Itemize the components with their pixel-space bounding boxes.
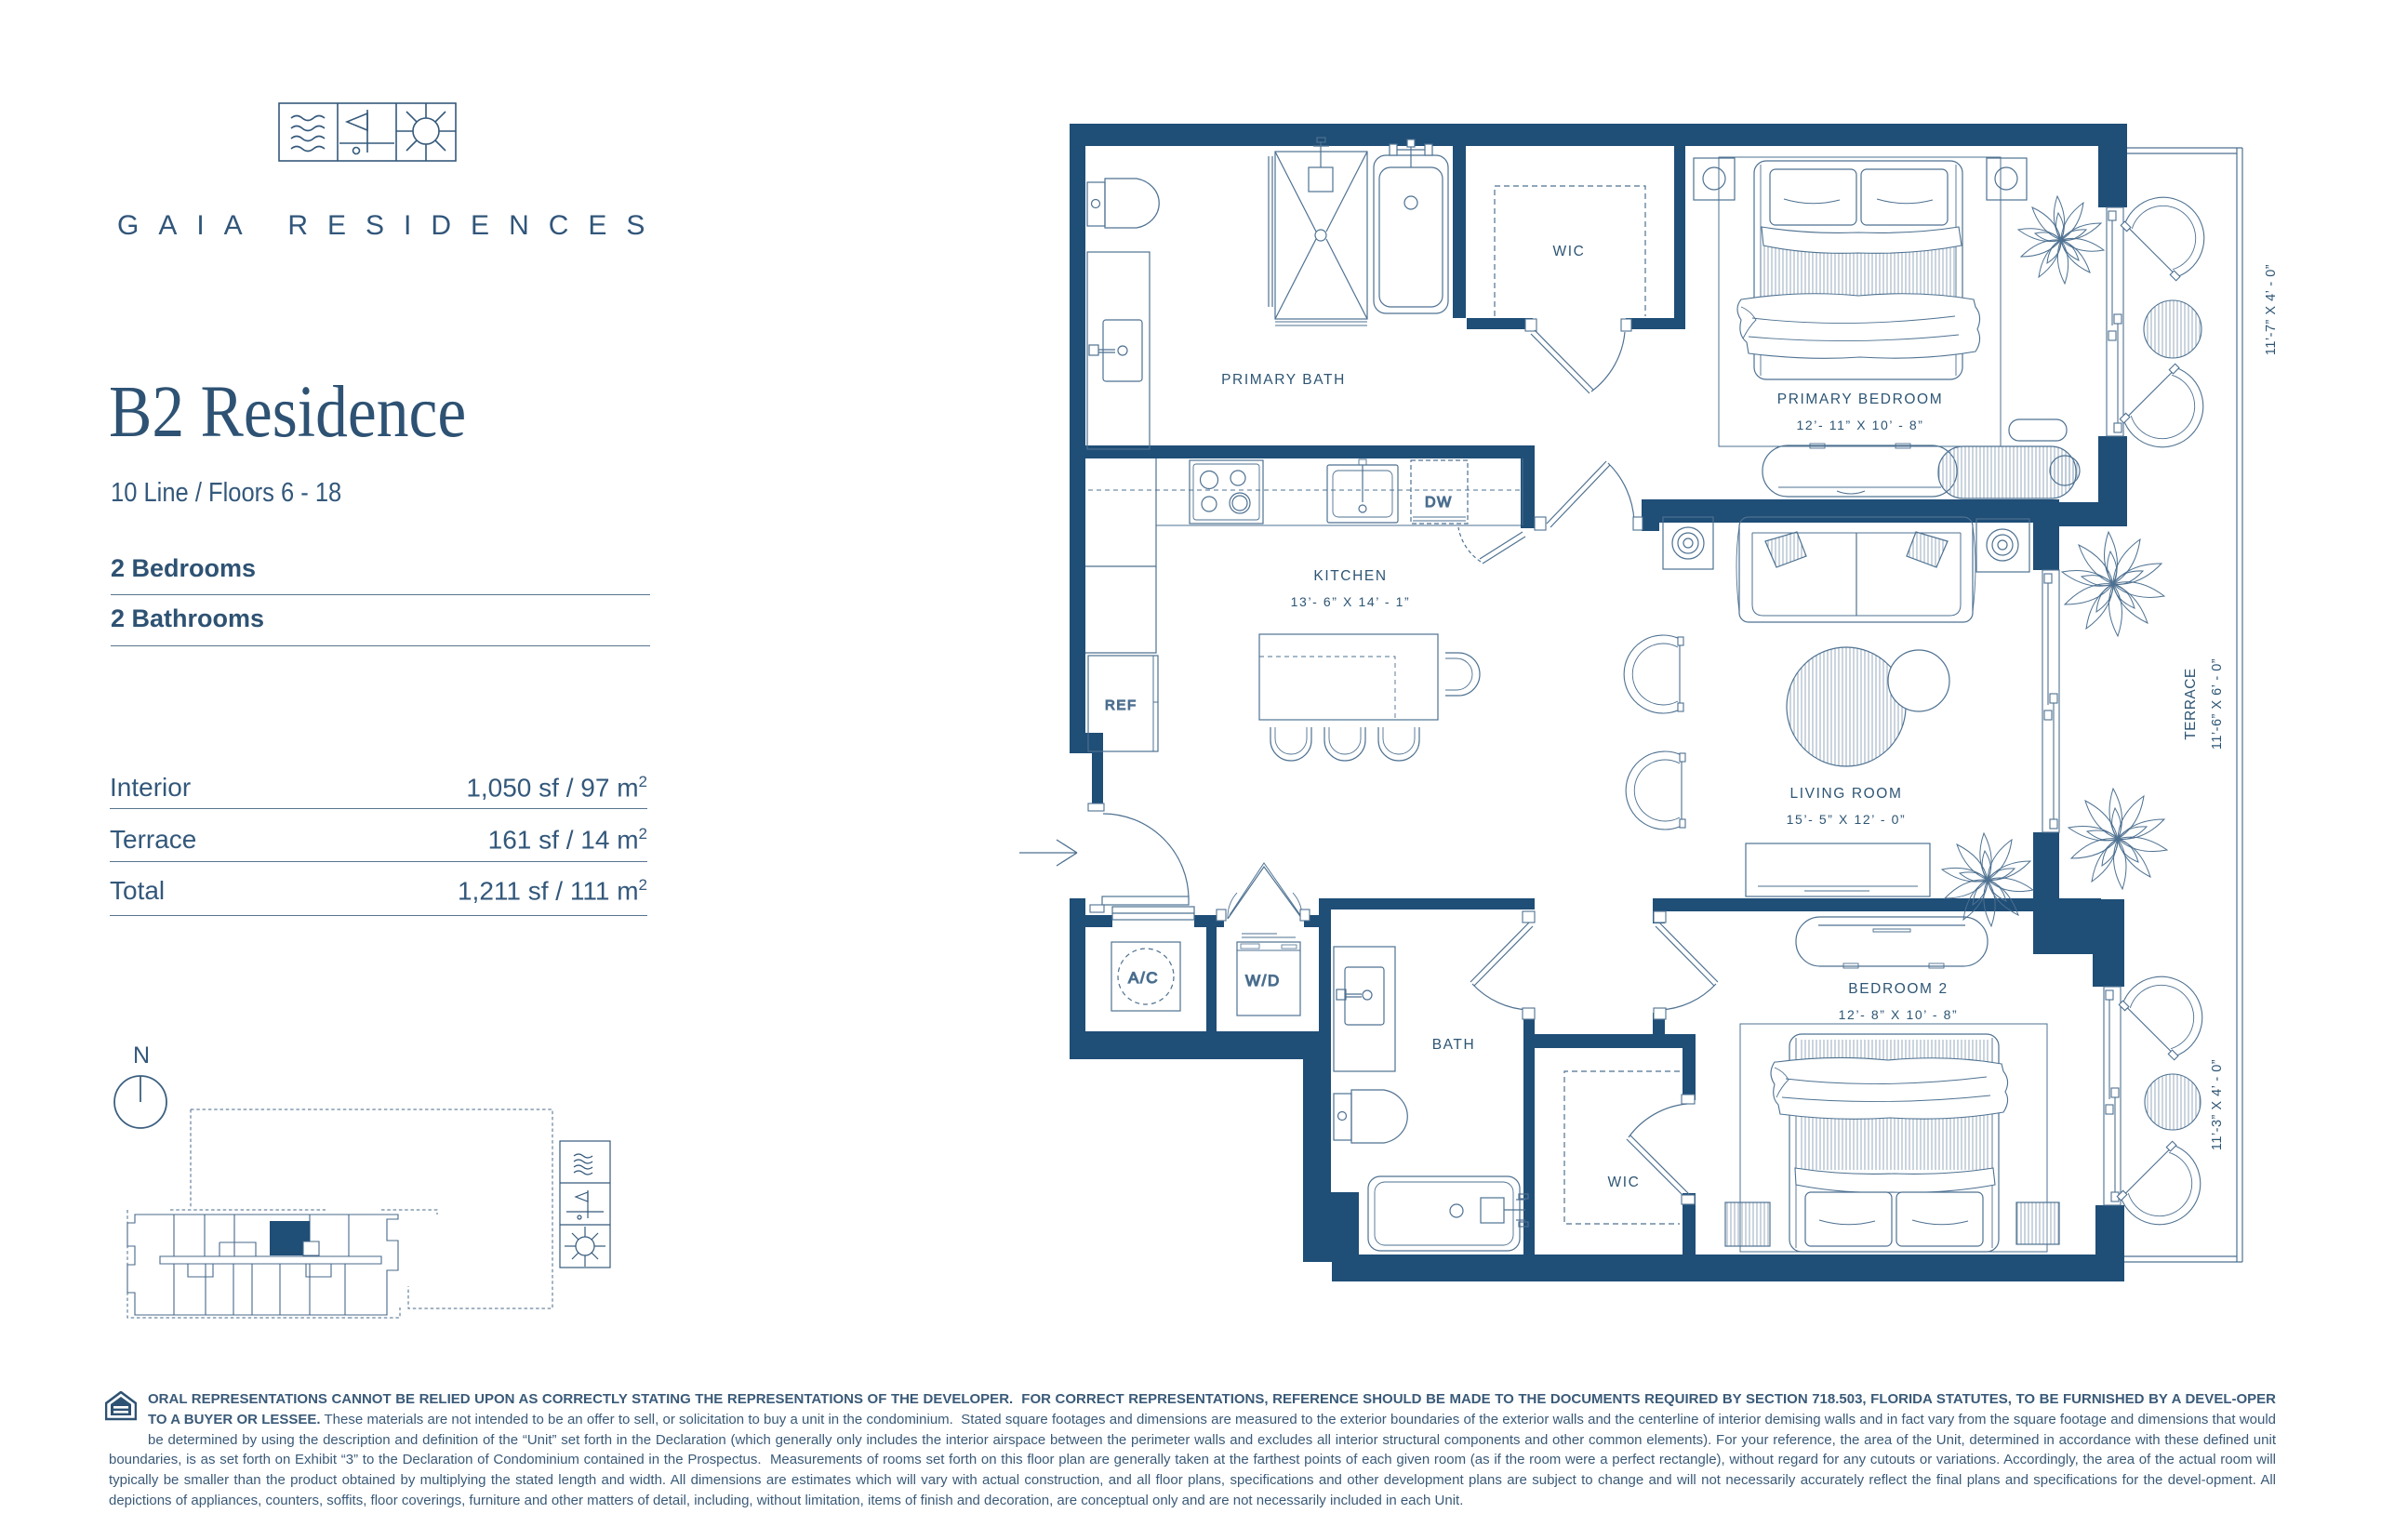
svg-text:N: N [133, 1042, 150, 1069]
svg-text:WIC: WIC [1553, 244, 1586, 259]
svg-text:11’-6” X 6’ - 0”: 11’-6” X 6’ - 0” [2210, 658, 2225, 750]
svg-text:BEDROOM 2: BEDROOM 2 [1848, 981, 1948, 997]
svg-text:13’- 6” X 14’ - 1”: 13’- 6” X 14’ - 1” [1291, 594, 1411, 609]
svg-text:REF: REF [1105, 697, 1137, 713]
svg-text:DW: DW [1425, 495, 1453, 511]
svg-text:PRIMARY BEDROOM: PRIMARY BEDROOM [1777, 392, 1943, 407]
svg-text:PRIMARY BATH: PRIMARY BATH [1221, 372, 1346, 388]
svg-text:12’- 11” X 10’ - 8”: 12’- 11” X 10’ - 8” [1797, 418, 1924, 432]
svg-text:BATH: BATH [1432, 1037, 1476, 1053]
svg-text:11’-3” X 4’ - 0”: 11’-3” X 4’ - 0” [2210, 1059, 2225, 1150]
svg-text:A/C: A/C [1128, 969, 1159, 987]
svg-text:W/D: W/D [1245, 972, 1281, 989]
svg-text:LIVING ROOM: LIVING ROOM [1790, 786, 1903, 802]
svg-text:TERRACE: TERRACE [2183, 668, 2199, 740]
svg-text:KITCHEN: KITCHEN [1313, 568, 1387, 584]
svg-text:15’- 5” X 12’ - 0”: 15’- 5” X 12’ - 0” [1787, 812, 1907, 827]
svg-text:12’- 8” X 10’ - 8”: 12’- 8” X 10’ - 8” [1839, 1007, 1959, 1022]
svg-text:WIC: WIC [1608, 1175, 1641, 1190]
svg-text:11’-7” X 4’ - 0”: 11’-7” X 4’ - 0” [2264, 264, 2279, 355]
